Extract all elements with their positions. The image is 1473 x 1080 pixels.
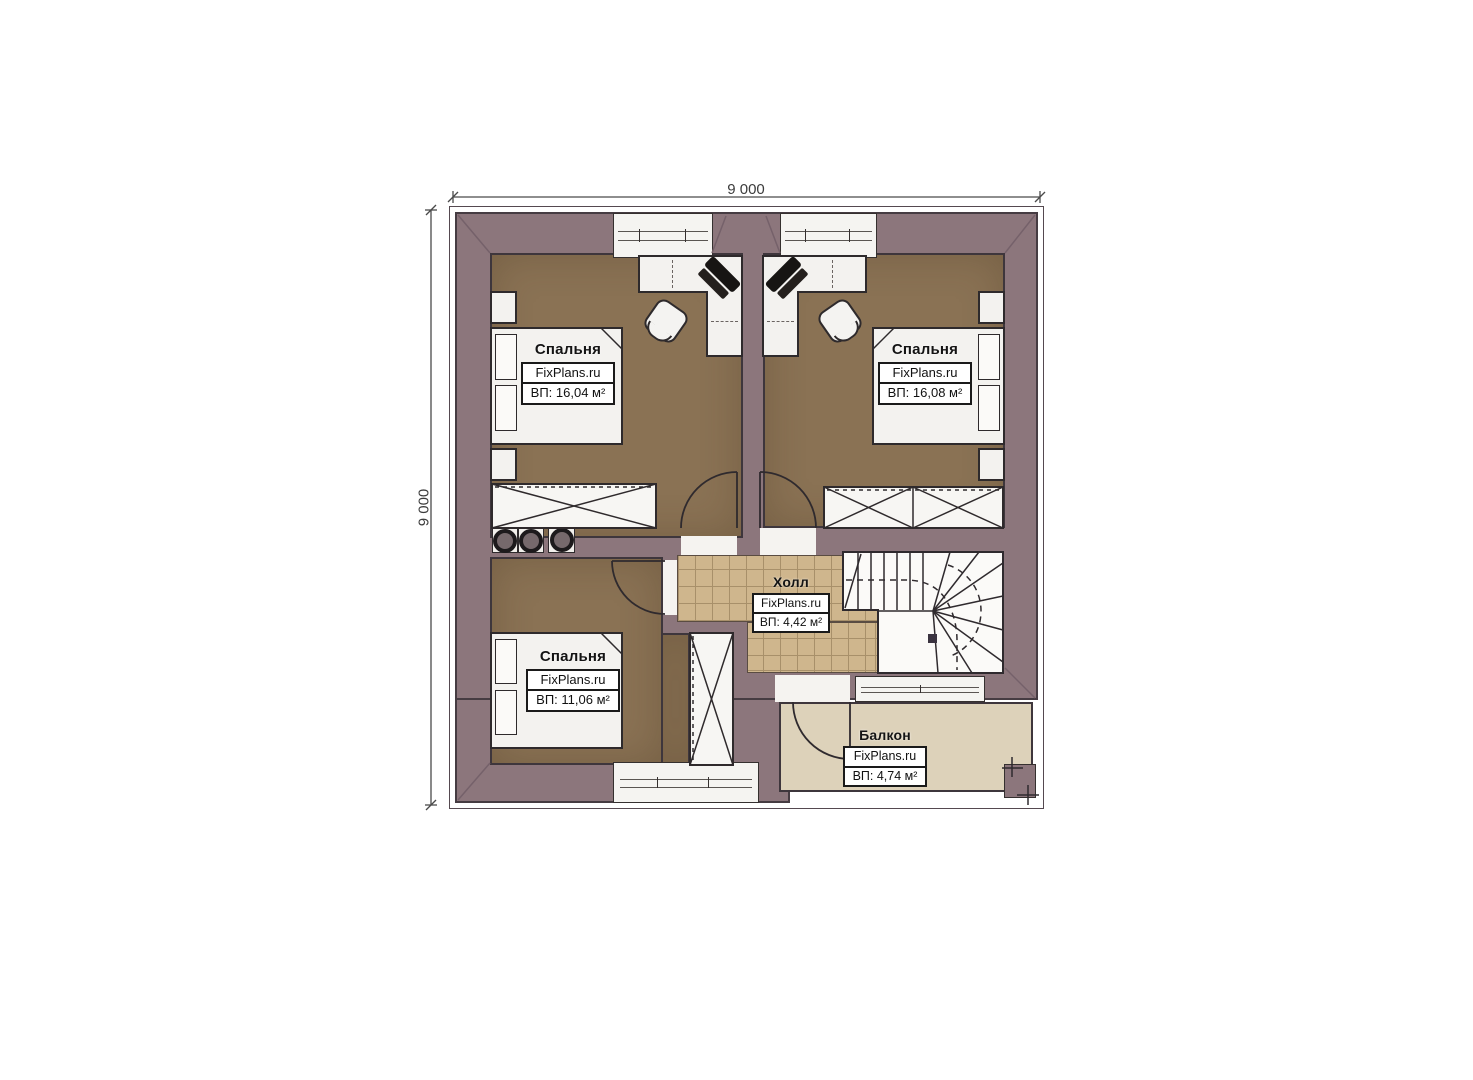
area-box: ВП: 11,06 м²: [526, 689, 620, 711]
room-title: Спальня: [540, 648, 606, 665]
wardrobe-bedroom-2: [824, 487, 1003, 528]
floor-plan-canvas: 9 000 9 000 Спальня FixPlans.ru ВП: 16,0…: [0, 0, 1473, 1080]
dimension-label-left: 9 000: [416, 478, 433, 538]
wardrobe-bedroom-1: [492, 484, 656, 528]
room-title: Спальня: [535, 341, 601, 358]
room-label-bedroom-1: Спальня FixPlans.ru ВП: 16,04 м²: [508, 341, 628, 405]
area-box: ВП: 16,04 м²: [521, 382, 615, 404]
room-title: Балкон: [859, 727, 911, 743]
plan-linework: [0, 0, 1473, 1080]
room-title: Спальня: [892, 341, 958, 358]
door-bedroom-2: [760, 472, 816, 528]
wardrobe-bedroom-3: [690, 633, 733, 765]
brand-box: FixPlans.ru: [526, 669, 620, 691]
room-label-hall: Холл FixPlans.ru ВП: 4,42 м²: [751, 574, 831, 633]
area-box: ВП: 4,74 м²: [843, 766, 927, 788]
brand-box: FixPlans.ru: [521, 362, 615, 384]
brand-box: FixPlans.ru: [843, 746, 927, 768]
dimension-label-top: 9 000: [716, 181, 776, 198]
room-label-bedroom-3: Спальня FixPlans.ru ВП: 11,06 м²: [513, 648, 633, 712]
stair-newel-post: [928, 634, 937, 643]
column-cross-marks: [1002, 757, 1039, 805]
area-box: ВП: 16,08 м²: [878, 382, 972, 404]
door-bedroom-3: [612, 561, 665, 614]
room-label-balcony: Балкон FixPlans.ru ВП: 4,74 м²: [842, 727, 928, 787]
staircase: [843, 552, 1003, 673]
area-box: ВП: 4,42 м²: [752, 612, 830, 633]
room-label-bedroom-2: Спальня FixPlans.ru ВП: 16,08 м²: [865, 341, 985, 405]
brand-box: FixPlans.ru: [878, 362, 972, 384]
room-title: Холл: [773, 574, 809, 590]
brand-box: FixPlans.ru: [752, 593, 830, 614]
door-bedroom-1: [681, 472, 737, 528]
